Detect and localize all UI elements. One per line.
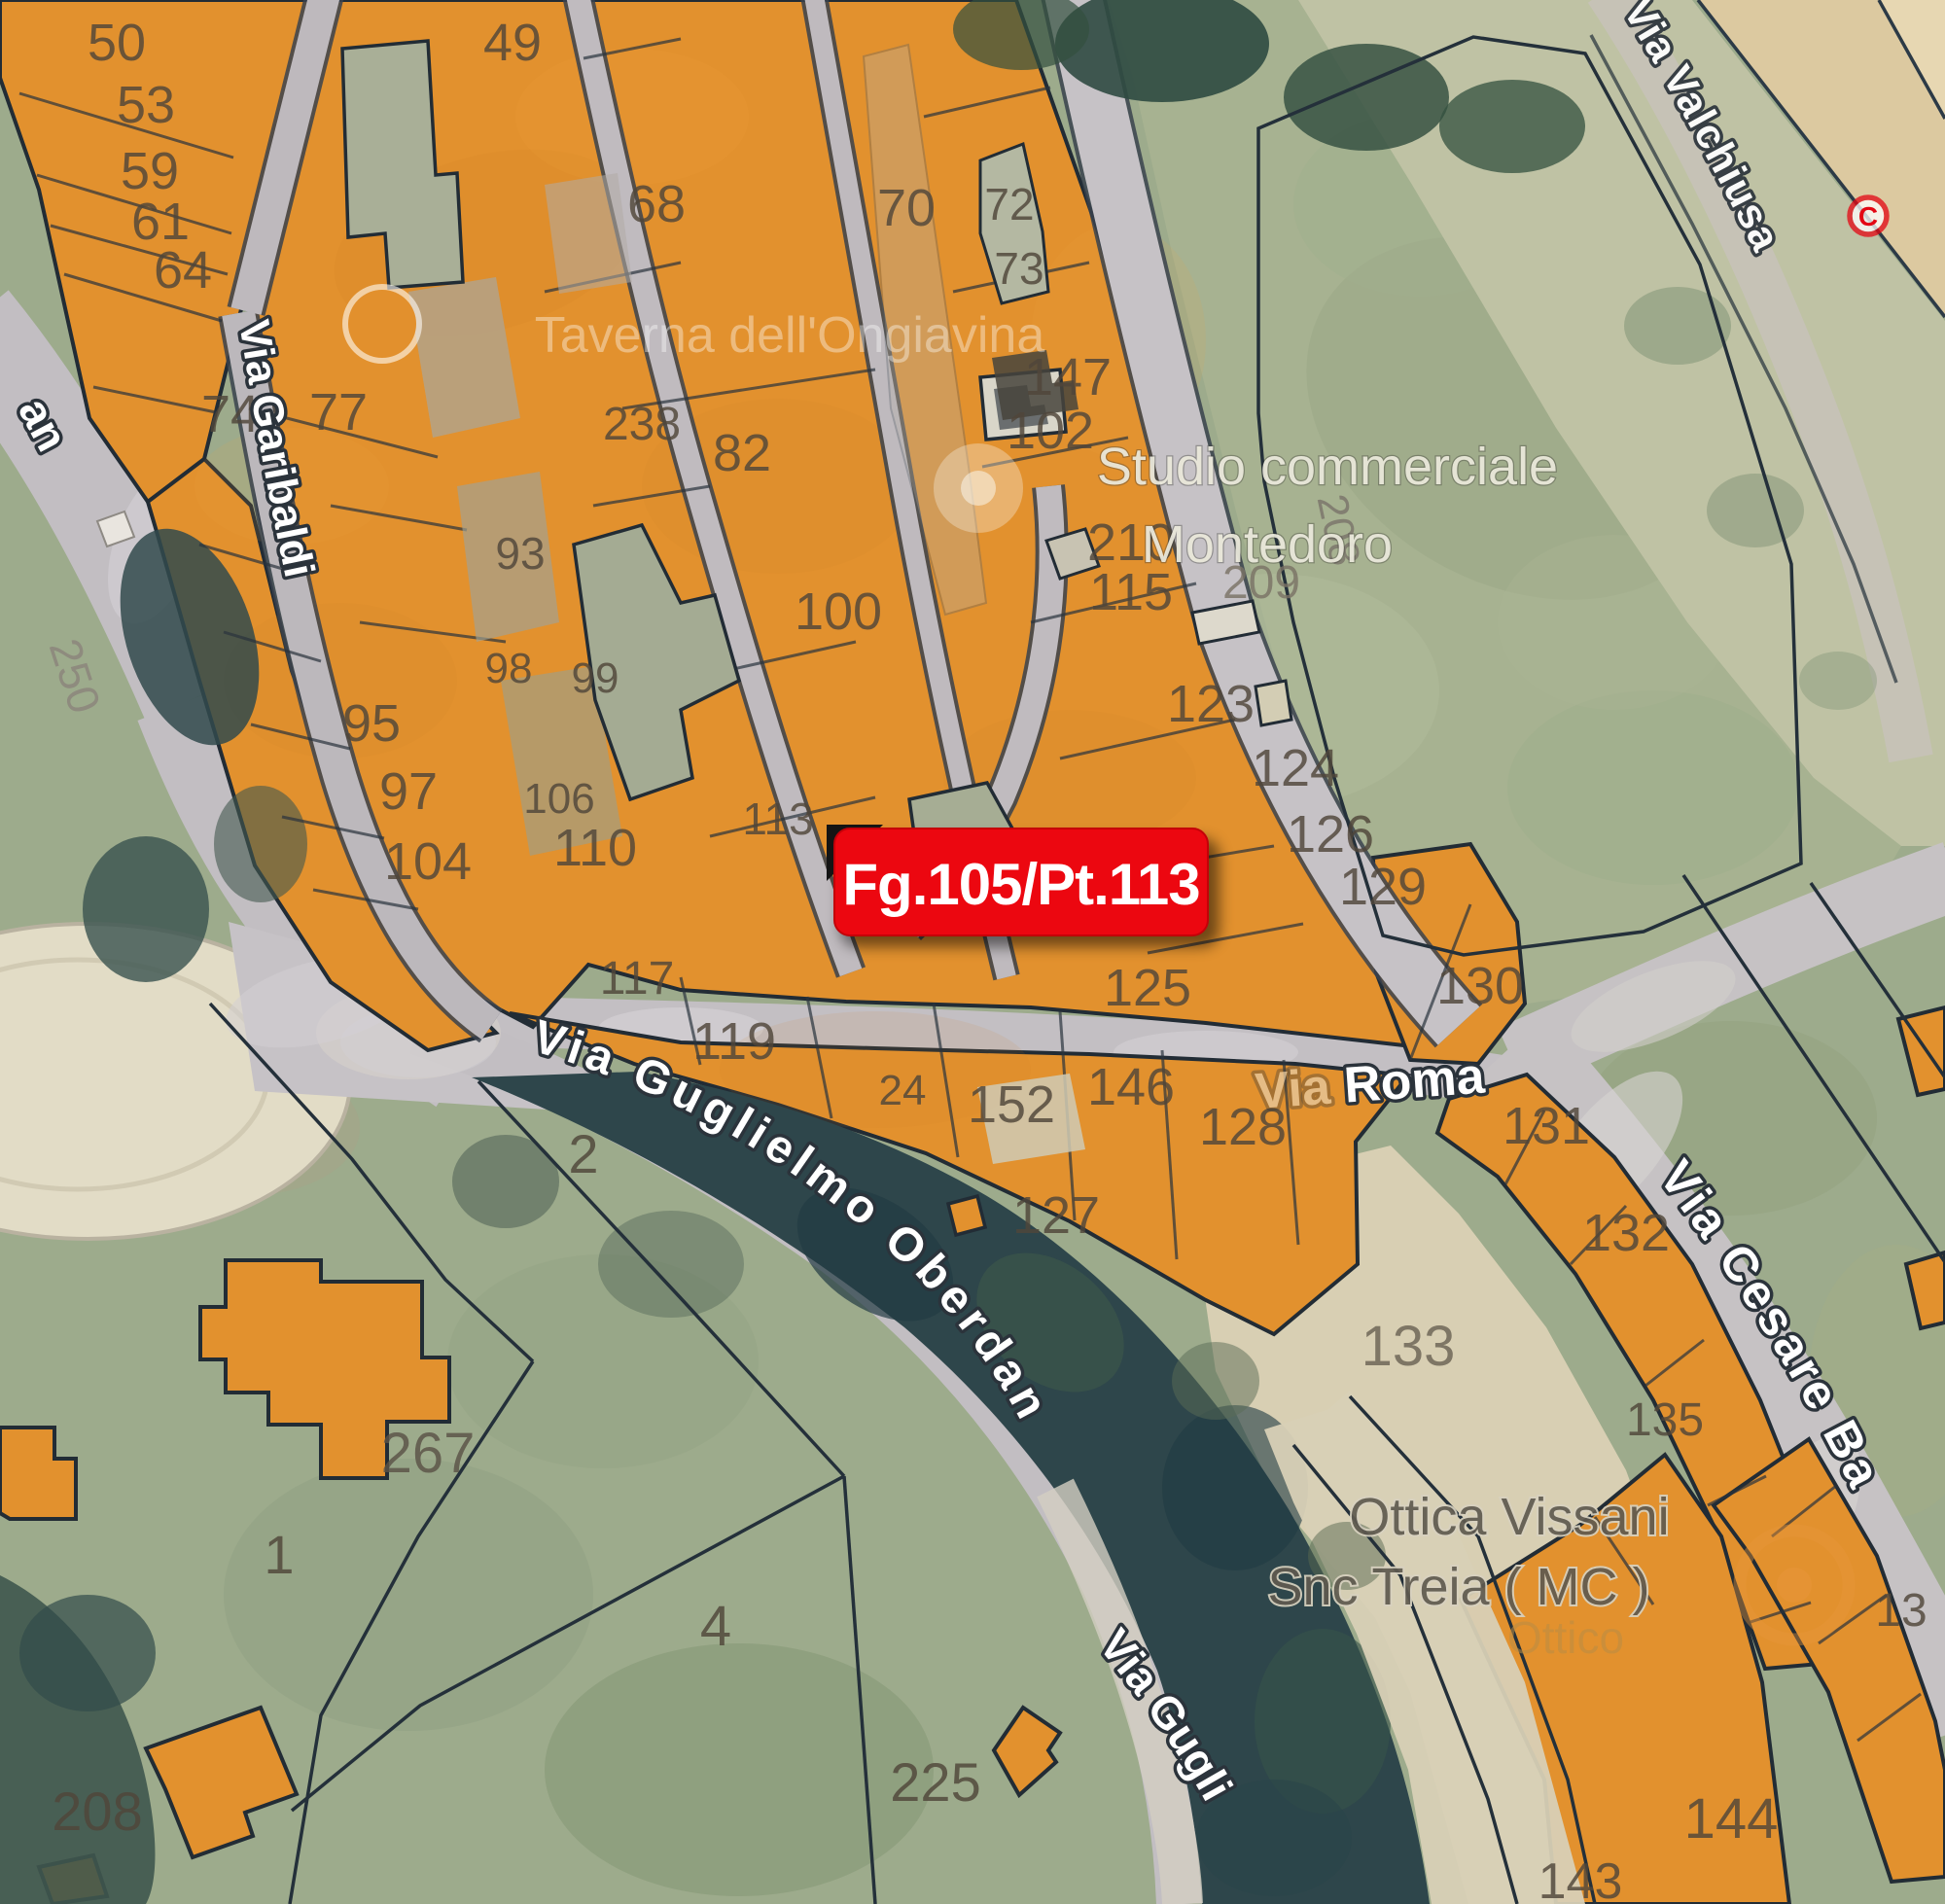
svg-text:13: 13: [1875, 1585, 1927, 1637]
svg-text:152: 152: [968, 1075, 1055, 1134]
svg-text:1: 1: [264, 1524, 294, 1585]
svg-text:119: 119: [692, 1012, 776, 1071]
svg-text:97: 97: [379, 762, 438, 821]
svg-text:53: 53: [117, 76, 175, 134]
svg-text:95: 95: [342, 694, 401, 753]
svg-text:Ottica Vissani: Ottica Vissani: [1349, 1488, 1669, 1546]
svg-text:98: 98: [485, 645, 533, 692]
svg-text:110: 110: [553, 819, 637, 877]
svg-text:102: 102: [1007, 402, 1094, 460]
svg-text:72: 72: [984, 179, 1034, 229]
svg-text:Studio commerciale: Studio commerciale: [1097, 438, 1558, 496]
svg-text:Ottico: Ottico: [1507, 1612, 1624, 1663]
svg-text:50: 50: [88, 14, 146, 72]
svg-text:267: 267: [381, 1422, 476, 1485]
svg-text:68: 68: [627, 175, 686, 233]
svg-text:123: 123: [1167, 675, 1255, 733]
svg-text:127: 127: [1012, 1186, 1100, 1245]
svg-text:99: 99: [572, 654, 619, 702]
svg-text:130: 130: [1436, 957, 1524, 1015]
svg-text:Taverna dell'Ongiavina: Taverna dell'Ongiavina: [535, 307, 1045, 364]
svg-text:225: 225: [890, 1751, 980, 1813]
svg-text:135: 135: [1626, 1394, 1704, 1446]
svg-text:4: 4: [700, 1595, 731, 1658]
svg-text:146: 146: [1087, 1058, 1175, 1116]
svg-text:129: 129: [1339, 858, 1427, 916]
svg-text:144: 144: [1684, 1787, 1779, 1851]
svg-text:Snc Treia ( MC ): Snc Treia ( MC ): [1267, 1558, 1649, 1616]
svg-text:132: 132: [1582, 1204, 1670, 1262]
svg-text:100: 100: [795, 582, 882, 641]
svg-text:93: 93: [495, 528, 545, 579]
svg-text:208: 208: [52, 1781, 142, 1842]
svg-text:124: 124: [1252, 739, 1339, 797]
svg-text:113: 113: [742, 793, 813, 844]
svg-text:82: 82: [713, 424, 771, 482]
svg-text:126: 126: [1287, 805, 1374, 864]
svg-text:143: 143: [1538, 1853, 1623, 1904]
svg-text:104: 104: [384, 832, 472, 891]
svg-text:238: 238: [603, 399, 681, 450]
svg-text:70: 70: [877, 179, 936, 237]
svg-text:73: 73: [994, 243, 1043, 294]
svg-text:77: 77: [309, 383, 368, 441]
svg-text:C: C: [1858, 201, 1878, 231]
svg-text:133: 133: [1361, 1315, 1456, 1378]
svg-text:24: 24: [879, 1067, 927, 1114]
svg-text:117: 117: [600, 953, 675, 1005]
svg-text:64: 64: [154, 241, 212, 300]
svg-text:2: 2: [568, 1123, 598, 1184]
svg-text:49: 49: [483, 14, 542, 72]
svg-text:59: 59: [121, 142, 179, 200]
svg-text:125: 125: [1104, 959, 1191, 1017]
svg-text:106: 106: [523, 775, 594, 823]
svg-text:Montedoro: Montedoro: [1142, 515, 1393, 574]
svg-text:131: 131: [1503, 1097, 1590, 1155]
svg-text:Fg.105/Pt.113: Fg.105/Pt.113: [842, 852, 1199, 917]
